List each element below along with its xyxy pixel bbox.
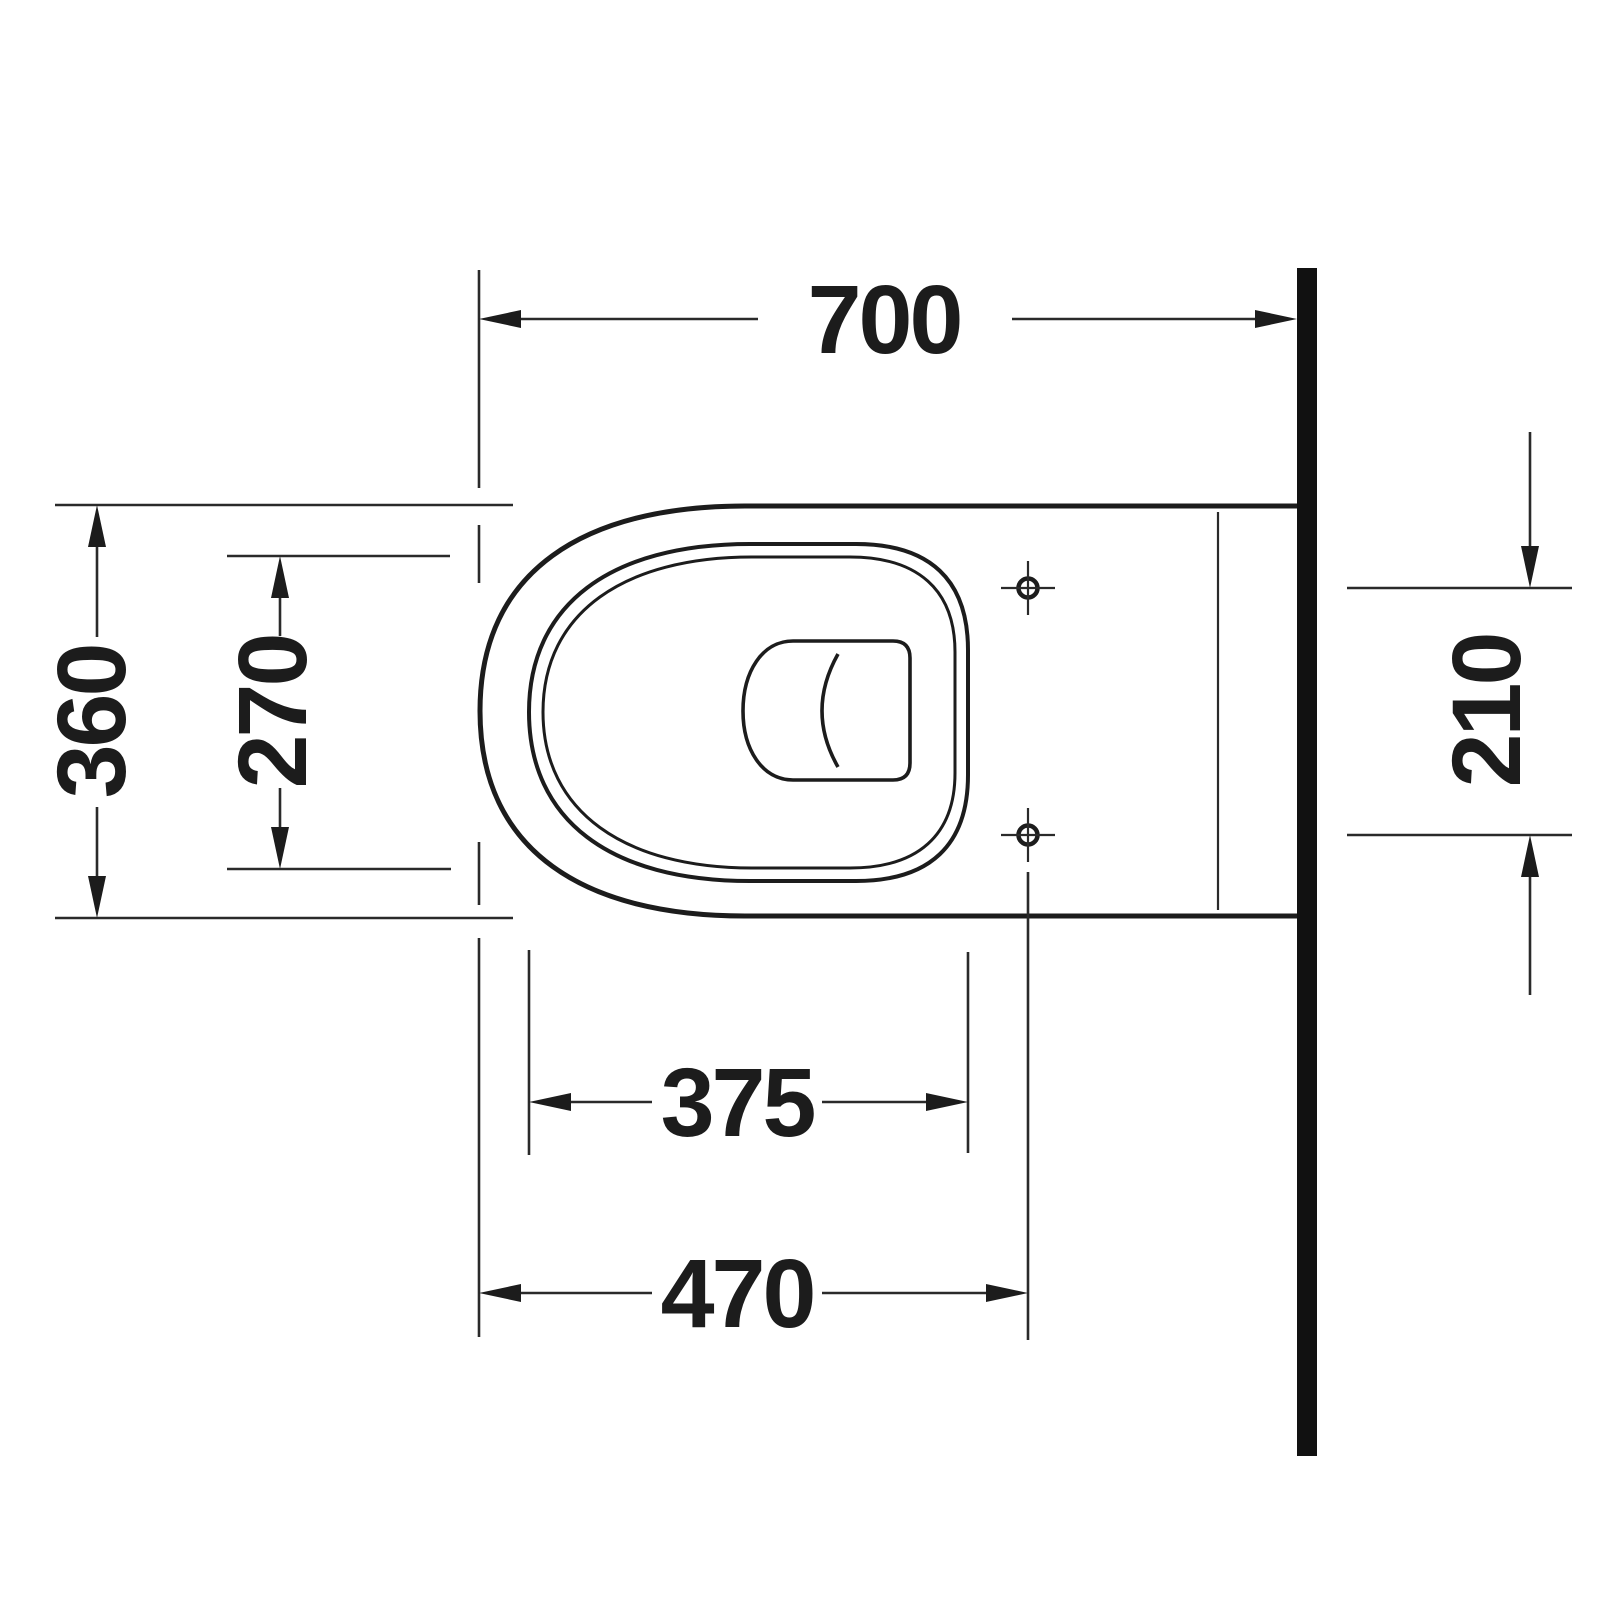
seat-rim-outer <box>529 544 968 881</box>
fixing-hole-top <box>1001 561 1055 615</box>
dimension-front-to-fixing-holes: 470 <box>479 525 1028 1348</box>
arrow-left-icon <box>529 1093 571 1111</box>
arrow-up-icon <box>1521 835 1539 877</box>
arrow-right-icon <box>926 1093 968 1111</box>
technical-drawing-canvas: 700 360 270 210 375 <box>0 0 1600 1600</box>
arrow-left-icon <box>479 310 521 328</box>
wall-line <box>1297 268 1317 1456</box>
dimension-label-360: 360 <box>37 646 146 799</box>
arrow-right-icon <box>1255 310 1297 328</box>
arrow-down-icon <box>271 827 289 869</box>
arrow-up-icon <box>88 505 106 547</box>
dimension-label-375: 375 <box>661 1048 815 1157</box>
arrow-down-icon <box>1521 546 1539 588</box>
dimension-bowl-opening-width: 270 <box>218 556 451 869</box>
trap-outline <box>743 641 910 780</box>
arrow-left-icon <box>479 1284 521 1302</box>
dimension-label-700: 700 <box>808 265 961 374</box>
toilet-top-view-diagram: 700 360 270 210 375 <box>0 0 1600 1600</box>
dimension-seat-rim-length: 375 <box>529 950 968 1157</box>
arrow-down-icon <box>88 876 106 918</box>
dimension-label-470: 470 <box>661 1239 814 1348</box>
fixing-hole-bottom <box>1001 808 1055 862</box>
arrow-up-icon <box>271 556 289 598</box>
toilet-outer-outline <box>480 506 1297 916</box>
dimension-fixing-hole-spacing: 210 <box>1347 432 1572 995</box>
trap-inner-curve <box>822 654 838 767</box>
dimension-label-210: 210 <box>1432 635 1541 788</box>
bowl-opening-inner <box>543 557 955 868</box>
toilet-body <box>480 506 1297 916</box>
dimension-overall-length: 700 <box>479 265 1297 488</box>
arrow-right-icon <box>986 1284 1028 1302</box>
dimension-label-270: 270 <box>218 636 327 789</box>
